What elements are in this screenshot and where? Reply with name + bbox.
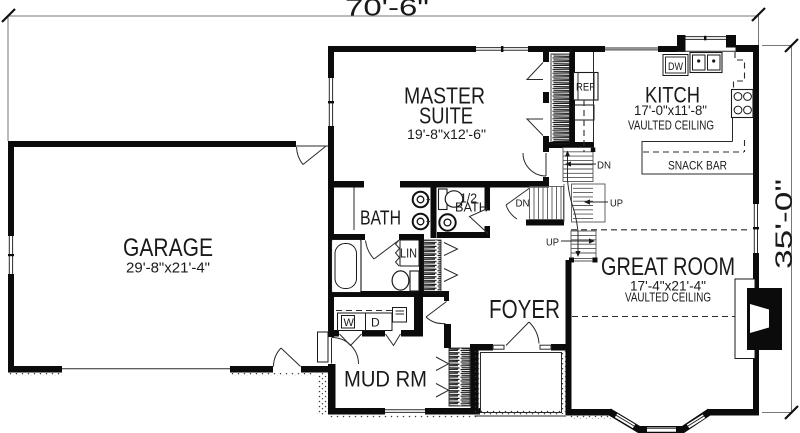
- svg-text:FOYER: FOYER: [489, 294, 560, 324]
- svg-text:LIN: LIN: [400, 247, 417, 261]
- svg-text:35'-0": 35'-0": [771, 179, 798, 269]
- svg-text:GARAGE: GARAGE: [123, 234, 213, 262]
- svg-text:19'-8"x12'-6": 19'-8"x12'-6": [407, 127, 486, 142]
- svg-text:VAULTED CEILING: VAULTED CEILING: [628, 118, 714, 133]
- svg-text:BATH: BATH: [360, 208, 401, 230]
- svg-text:D: D: [371, 316, 380, 330]
- svg-text:UP: UP: [546, 237, 559, 249]
- svg-text:BATH: BATH: [455, 200, 488, 215]
- svg-text:DN: DN: [597, 160, 611, 172]
- svg-text:70'-6": 70'-6": [345, 0, 429, 22]
- svg-text:SNACK BAR: SNACK BAR: [668, 161, 727, 173]
- svg-text:DN: DN: [516, 198, 530, 210]
- svg-text:VAULTED CEILING: VAULTED CEILING: [625, 291, 711, 305]
- svg-text:SUITE: SUITE: [419, 103, 473, 129]
- svg-text:UP: UP: [610, 198, 623, 210]
- svg-text:REF: REF: [576, 82, 595, 94]
- svg-text:MUD RM: MUD RM: [344, 367, 427, 392]
- svg-text:29'-8"x21'-4": 29'-8"x21'-4": [126, 260, 210, 277]
- svg-text:GREAT ROOM: GREAT ROOM: [601, 253, 735, 281]
- svg-text:W: W: [344, 317, 355, 329]
- svg-text:DW: DW: [668, 61, 684, 73]
- svg-text:17'-0"x11'-8": 17'-0"x11'-8": [634, 103, 707, 118]
